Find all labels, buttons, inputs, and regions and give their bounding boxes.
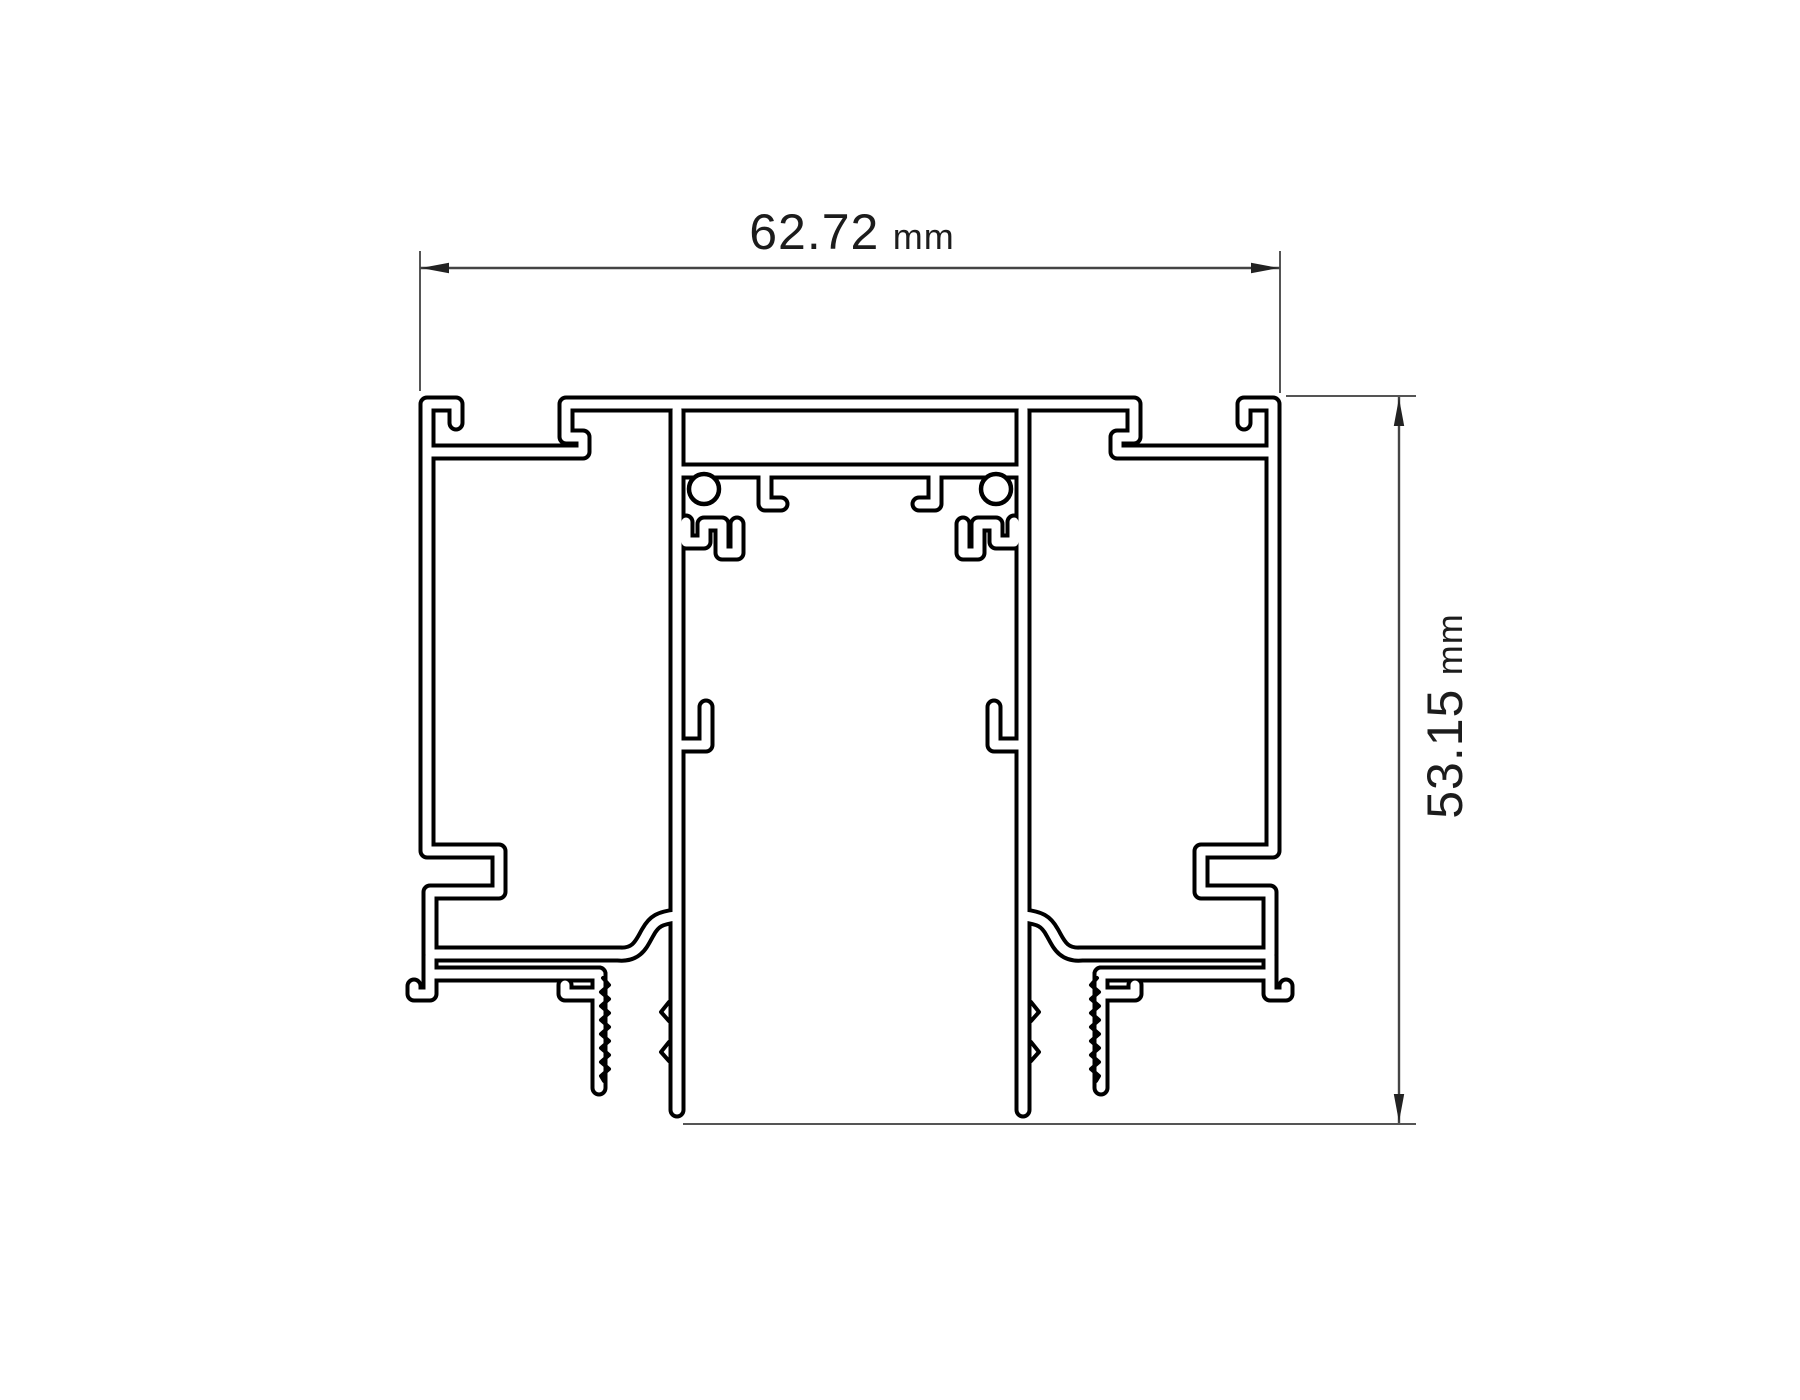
- height-dimension-value: 53.15: [1417, 689, 1473, 819]
- width-dimension-unit: mm: [893, 216, 955, 257]
- arrow-down-icon: [1394, 1094, 1404, 1122]
- width-dimension: 62.72 mm: [420, 204, 1280, 393]
- drawing-canvas: 62.72 mm 53.15 mm: [0, 0, 1800, 1400]
- height-dimension-label: 53.15 mm: [1417, 613, 1473, 819]
- profile-details-left: [601, 474, 719, 1081]
- height-dimension: 53.15 mm: [683, 396, 1473, 1124]
- profile-wall-cores: [414, 404, 1286, 1110]
- height-dimension-unit: mm: [1429, 613, 1470, 675]
- arrow-up-icon: [1394, 398, 1404, 426]
- arrow-left-icon: [421, 263, 449, 273]
- arrow-right-icon: [1251, 263, 1279, 273]
- profile-outline: [414, 404, 1286, 1110]
- width-dimension-value: 62.72: [749, 204, 879, 260]
- profile-wall-faces: [414, 404, 1286, 1110]
- technical-drawing: 62.72 mm 53.15 mm: [0, 0, 1800, 1400]
- width-dimension-label: 62.72 mm: [749, 204, 955, 260]
- profile-details-right: [981, 474, 1099, 1081]
